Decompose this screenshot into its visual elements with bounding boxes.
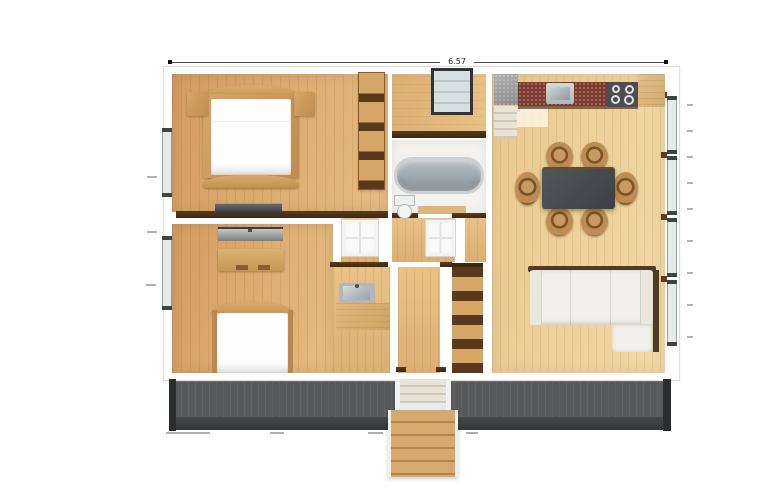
kitchen-floor-highlight [512, 107, 548, 127]
dimension-end-marker-left [168, 60, 172, 64]
wall-segment [455, 214, 465, 262]
dimension-tick [146, 284, 156, 286]
dimension-tick [687, 208, 693, 210]
dining-table [542, 167, 615, 209]
dimension-tick [687, 336, 693, 338]
wall-cap [392, 131, 486, 138]
wall-segment [379, 214, 392, 262]
dining-chair [515, 172, 540, 205]
console-knob [248, 229, 252, 232]
window-right-1 [667, 97, 677, 153]
desk-drawer [236, 265, 248, 270]
bathtub [394, 157, 484, 194]
deck-step-landing [400, 403, 446, 410]
basin-bowl [343, 286, 370, 300]
dimension-tick [687, 272, 693, 274]
wardrobe-shelves [358, 72, 385, 190]
burner [612, 85, 620, 93]
dimension-tick [368, 432, 383, 434]
wall-cap [396, 367, 406, 372]
dimension-line-top [170, 62, 667, 63]
corridor-floor [398, 267, 440, 373]
burner [625, 85, 634, 94]
step-stringer [446, 379, 451, 410]
double-bed [203, 85, 299, 188]
dimension-tick [147, 176, 157, 178]
bed-footboard [203, 175, 299, 188]
wood-counter [638, 74, 665, 107]
sink-basin [550, 87, 570, 100]
door-bedroom [341, 219, 379, 257]
dimension-tick [466, 432, 478, 434]
cooktop [607, 82, 638, 107]
dimension-tick [687, 104, 693, 106]
dimension-tick [687, 156, 693, 158]
sofa-chaise [612, 324, 652, 352]
dining-chair [546, 207, 573, 236]
floor-plan-canvas: 6.57 [0, 0, 781, 502]
door-bathroom [425, 219, 456, 257]
open-shelving [452, 263, 483, 373]
media-console [218, 227, 283, 241]
basin-faucet [355, 284, 359, 288]
dimension-tick [147, 231, 157, 233]
sofa-armrest [530, 271, 542, 325]
sofa-side [653, 270, 659, 352]
nightstand-left [187, 92, 208, 116]
desk-drawer [258, 265, 270, 270]
hall-glazed-panel [431, 68, 473, 115]
washbasin [339, 283, 375, 305]
entry-steps [494, 106, 517, 138]
wall-segment [333, 214, 341, 262]
dimension-tick [687, 130, 693, 132]
wc-counter [336, 303, 390, 330]
deck-post-left [169, 379, 176, 431]
window-sill [661, 152, 667, 158]
dimension-tick [687, 240, 693, 242]
window-sill [661, 214, 667, 220]
low-dresser [215, 203, 282, 214]
window-right-4 [667, 281, 677, 345]
desk [218, 249, 284, 271]
deck-steps [400, 379, 446, 404]
bed-mattress [217, 313, 288, 373]
gray-counter [494, 74, 518, 105]
window-right-3 [667, 219, 677, 276]
dimension-tick [687, 182, 693, 184]
window-left-bedroom1 [162, 129, 172, 196]
wall-cap [176, 211, 388, 218]
wall-cap [436, 367, 446, 372]
outdoor-stairs [388, 410, 458, 477]
dimension-tick [166, 432, 210, 434]
wall-cap [330, 262, 388, 267]
sectional-sofa [528, 266, 659, 353]
dimension-tick [687, 304, 693, 306]
dimension-tick [270, 432, 284, 434]
blanket-fold [213, 121, 289, 122]
window-right-2 [667, 157, 677, 214]
deck-post-right [663, 379, 671, 431]
dimension-end-marker-right [664, 60, 668, 64]
dining-chair [613, 172, 638, 205]
burner [624, 95, 634, 105]
burner [611, 95, 620, 104]
nightstand-right [294, 92, 315, 116]
sofa-body [530, 270, 653, 325]
toilet [393, 195, 417, 221]
sofa-armrest [640, 271, 652, 325]
window-left-bedroom2 [162, 237, 172, 309]
dining-chair [581, 207, 608, 236]
wall-cap [440, 262, 452, 267]
window-sill [661, 276, 667, 282]
wall-cap [452, 213, 486, 218]
bed-mattress [211, 99, 291, 175]
bed-rail-right [288, 310, 293, 373]
kitchen-sink [546, 83, 574, 104]
single-bed [212, 302, 293, 373]
toilet-bowl [397, 204, 412, 219]
